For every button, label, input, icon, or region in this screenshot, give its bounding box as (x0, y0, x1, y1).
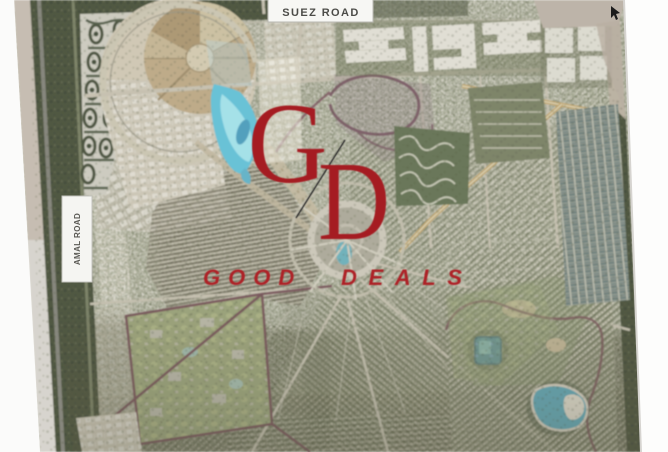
svg-text:GOOD: GOOD (203, 265, 302, 290)
svg-text:G: G (248, 79, 328, 208)
svg-text:D: D (318, 140, 390, 264)
svg-text:DEALS: DEALS (341, 265, 474, 290)
svg-text:SUEZ ROAD: SUEZ ROAD (282, 7, 359, 19)
svg-text:AMAL ROAD: AMAL ROAD (73, 213, 82, 265)
